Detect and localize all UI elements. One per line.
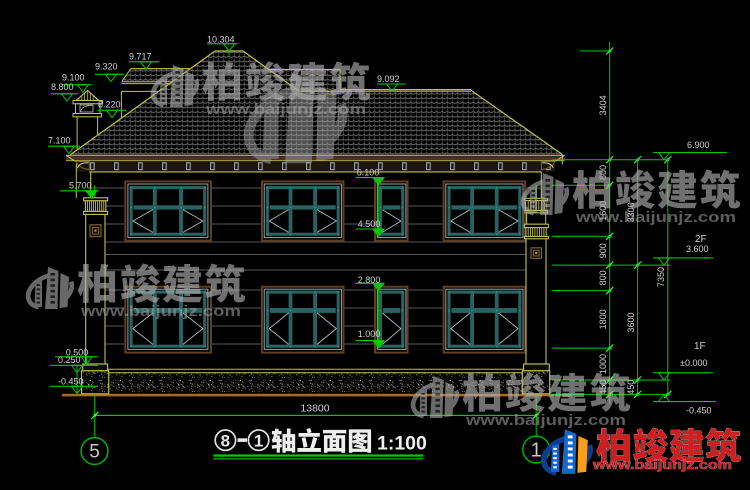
svg-text:1000: 1000: [598, 354, 608, 374]
svg-text:1: 1: [254, 431, 263, 450]
svg-text:www.baijunjz.com: www.baijunjz.com: [575, 209, 736, 226]
svg-text:8.800: 8.800: [51, 82, 74, 92]
svg-text:6.900: 6.900: [687, 140, 710, 150]
svg-text:3600: 3600: [626, 313, 636, 333]
svg-text:450: 450: [626, 380, 636, 395]
svg-text:-0.450: -0.450: [686, 406, 712, 416]
svg-text:5: 5: [89, 442, 100, 463]
svg-text:1: 1: [531, 440, 542, 462]
svg-text:2.800: 2.800: [358, 275, 381, 285]
svg-text:10.304: 10.304: [207, 35, 235, 45]
svg-text:5.700: 5.700: [69, 181, 92, 191]
svg-text:6.100: 6.100: [357, 168, 380, 178]
svg-text:8.220: 8.220: [98, 100, 121, 110]
svg-text:13800: 13800: [300, 403, 329, 415]
svg-text:9.092: 9.092: [377, 74, 400, 84]
svg-text:4.500: 4.500: [358, 219, 381, 229]
svg-text:±0.000: ±0.000: [680, 358, 707, 368]
svg-text:7350: 7350: [656, 267, 666, 287]
svg-text:9.717: 9.717: [129, 52, 152, 62]
svg-text:7.100: 7.100: [48, 135, 71, 145]
svg-text:www.baijunjz.com: www.baijunjz.com: [592, 458, 732, 472]
svg-text:1:100: 1:100: [377, 432, 427, 454]
svg-text:3404: 3404: [598, 95, 608, 115]
svg-text:1800: 1800: [598, 309, 608, 329]
svg-text:9.320: 9.320: [95, 62, 118, 72]
svg-text:8: 8: [221, 431, 230, 450]
svg-text:1.000: 1.000: [358, 329, 381, 339]
svg-text:www.baijunjz.com: www.baijunjz.com: [80, 303, 241, 320]
svg-text:800: 800: [598, 270, 608, 285]
svg-text:-0.450: -0.450: [58, 376, 84, 386]
svg-text:2F: 2F: [695, 234, 707, 245]
svg-text:900: 900: [598, 243, 608, 258]
svg-text:www.baijunjz.com: www.baijunjz.com: [465, 412, 626, 429]
svg-text:1F: 1F: [694, 341, 706, 352]
svg-text:3.600: 3.600: [686, 244, 709, 254]
svg-text:0.250: 0.250: [58, 355, 81, 365]
